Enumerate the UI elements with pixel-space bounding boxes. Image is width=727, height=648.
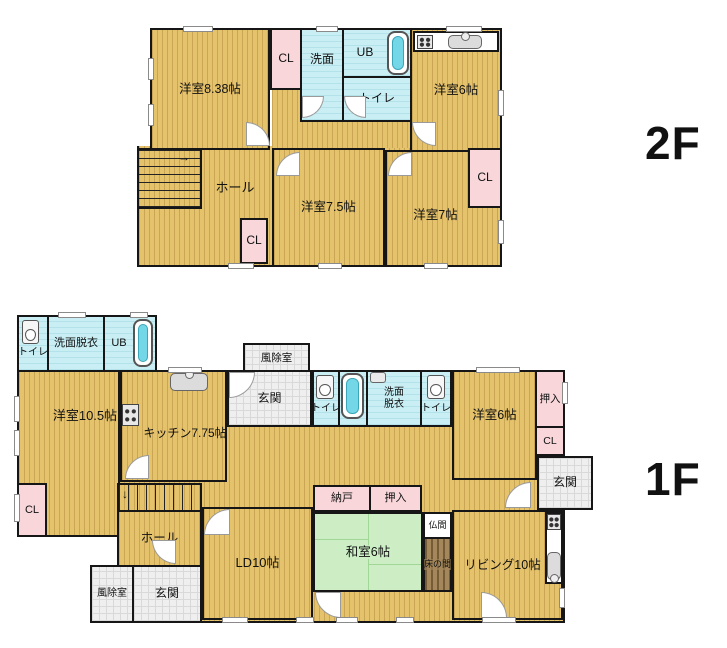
washroom-dressing-1f-b-label: 洗面脱衣 bbox=[382, 387, 406, 410]
floor-label-2f: 2F bbox=[645, 116, 701, 170]
living-room-1f-label: リビング10帖 bbox=[464, 558, 550, 572]
window bbox=[14, 396, 20, 422]
window bbox=[396, 617, 414, 623]
kitchen-1f-label: キッチン7.75帖 bbox=[130, 424, 240, 441]
sink-icon bbox=[448, 35, 482, 49]
storeroom-nando-label: 納戸 bbox=[331, 492, 353, 505]
floor-label-1f: 1F bbox=[645, 452, 701, 506]
window bbox=[168, 367, 202, 373]
window bbox=[222, 617, 248, 623]
stove-icon bbox=[547, 514, 561, 530]
closet-1f-left: CL bbox=[17, 483, 47, 537]
window bbox=[482, 617, 516, 623]
window bbox=[498, 220, 504, 244]
oshiire-center-label: 押入 bbox=[385, 492, 407, 505]
windbreak-room-bottom: 風除室 bbox=[90, 565, 134, 623]
closet-2f-right: CL bbox=[468, 148, 502, 208]
window bbox=[562, 382, 568, 404]
entrance-bottom-label: 玄関 bbox=[155, 587, 179, 601]
oshiire-center: 押入 bbox=[369, 485, 422, 512]
oshiire-1f-right: 押入 bbox=[535, 370, 565, 428]
window bbox=[228, 263, 254, 269]
stairs-2f-arrow-icon: → bbox=[178, 150, 190, 164]
closet-2f-top-label: CL bbox=[278, 52, 293, 66]
window bbox=[14, 494, 20, 522]
windbreak-room-top-label: 風除室 bbox=[261, 352, 293, 364]
hall-2f-filler bbox=[302, 120, 410, 148]
storeroom-nando: 納戸 bbox=[313, 485, 371, 512]
oshiire-1f-right-label: 押入 bbox=[540, 393, 561, 405]
room-2f-western-838-label: 洋室8.38帖 bbox=[179, 82, 241, 96]
washroom-2f-label: 洗面 bbox=[310, 53, 334, 97]
bathtub-icon bbox=[341, 373, 364, 419]
window bbox=[424, 263, 448, 269]
floor-plan-canvas: 洋室8.38帖 CL 洗面 UB トイレ 洋室6帖 → 洋室7.5帖 CL 洋室… bbox=[0, 0, 727, 648]
hall-1f: ホール bbox=[117, 510, 202, 567]
window bbox=[296, 617, 314, 623]
window bbox=[58, 312, 86, 318]
closet-2f-bottom: CL bbox=[240, 218, 268, 264]
tokonoma-label: 床の間 bbox=[424, 559, 451, 569]
room-2f-western-6-label: 洋室6帖 bbox=[434, 83, 478, 97]
japanese-room-6-label: 和室6帖 bbox=[344, 545, 392, 559]
bathtub-icon bbox=[133, 319, 153, 367]
entrance-bottom: 玄関 bbox=[132, 565, 202, 623]
stairs-1f-arrow-icon: ↓ bbox=[122, 487, 128, 501]
entrance-right: 玄関 bbox=[537, 456, 593, 510]
closet-2f-bottom-label: CL bbox=[246, 234, 261, 248]
stove-icon bbox=[417, 35, 433, 49]
toilet-icon bbox=[427, 375, 445, 399]
room-2f-western-7-label: 洋室7帖 bbox=[413, 194, 473, 222]
closet-2f-right-label: CL bbox=[477, 171, 492, 185]
washroom-dressing-1f-a-label: 洗面脱衣 bbox=[54, 337, 98, 350]
landing-2f-filler bbox=[272, 90, 302, 148]
japanese-room-6: 和室6帖 bbox=[313, 512, 423, 592]
sink-icon bbox=[547, 552, 561, 580]
window bbox=[318, 263, 342, 269]
room-1f-western-6-label: 洋室6帖 bbox=[472, 408, 516, 442]
window bbox=[559, 588, 565, 608]
closet-1f-right: CL bbox=[535, 426, 565, 456]
stairs-2f bbox=[137, 148, 202, 209]
bathtub-icon bbox=[387, 31, 409, 75]
sink-icon bbox=[170, 373, 208, 391]
toilet-icon bbox=[22, 320, 39, 344]
window bbox=[130, 312, 148, 318]
window bbox=[316, 26, 338, 32]
window bbox=[14, 430, 20, 456]
entrance-top-label: 玄関 bbox=[257, 392, 281, 406]
window bbox=[148, 104, 154, 126]
closet-2f-top: CL bbox=[270, 28, 302, 90]
washroom-dressing-1f-a: 洗面脱衣 bbox=[47, 315, 105, 372]
windbreak-room-bottom-label: 風除室 bbox=[97, 588, 127, 600]
butsuma-label: 仏間 bbox=[428, 520, 446, 530]
window bbox=[183, 26, 213, 32]
closet-1f-right-label: CL bbox=[543, 435, 556, 447]
tokonoma: 床の間 bbox=[423, 537, 452, 592]
entrance-right-label: 玄関 bbox=[553, 476, 577, 490]
stove-icon bbox=[122, 404, 139, 426]
window bbox=[476, 367, 520, 373]
window bbox=[148, 58, 154, 80]
room-1f-western-6: 洋室6帖 bbox=[452, 370, 537, 480]
living-dining-1f-label: LD10帖 bbox=[235, 556, 279, 571]
stairs-1f bbox=[117, 483, 202, 512]
closet-1f-left-label: CL bbox=[25, 504, 39, 517]
window bbox=[498, 90, 504, 116]
toilet-icon bbox=[316, 375, 334, 399]
washbasin-icon bbox=[370, 372, 386, 383]
butsuma: 仏間 bbox=[423, 512, 452, 539]
window bbox=[446, 26, 482, 32]
hall-2f-label: ホール bbox=[200, 177, 270, 196]
room-2f-western-75-label: 洋室7.5帖 bbox=[301, 200, 356, 214]
window bbox=[336, 617, 358, 623]
